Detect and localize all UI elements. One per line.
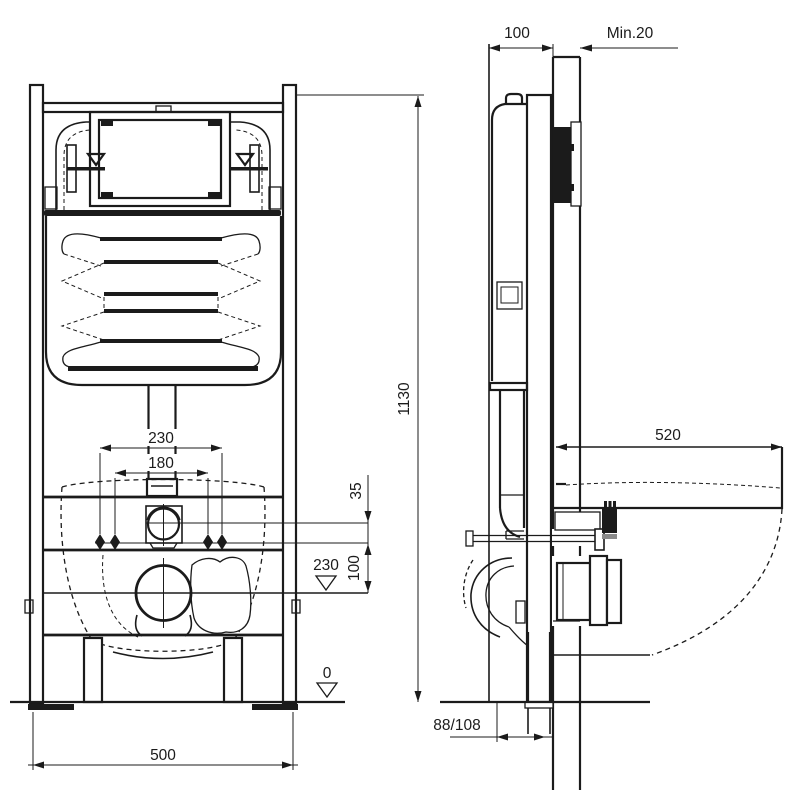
outlet-height-datum: 230 [313,557,339,590]
foot-plate-right [252,704,298,710]
frame-upright-profile [527,95,551,702]
width-dimension: 500 [28,712,298,770]
frame-top-crossbar [43,103,283,112]
frame-rail-right [283,85,296,704]
datum-triangle [316,576,336,590]
floor-datum: 0 [317,665,337,697]
access-window-outer [90,112,230,206]
depth-dimension: 100 [489,25,553,57]
adjustable-leg-right [224,638,242,702]
height-offsets-dimension: 35 100 [346,475,372,593]
window-corner-tick [101,192,113,197]
flush-valve-inner [501,287,518,303]
cistern-base-bar [490,383,527,390]
cistern-ribbon-pattern [62,234,260,371]
access-window-inner [99,120,221,198]
dim-outlet-height-label: 230 [313,557,339,574]
dim-supply-gap-label: 35 [348,482,365,499]
window-corner-tick [208,121,220,126]
foot-plate-left [28,704,74,710]
installation-drawing-page: 230 180 35 100 230 0 [0,0,800,800]
fixing-bracket-side [555,512,600,530]
flush-pipe-coupler [147,479,177,496]
rod-washer [602,534,617,539]
dim-drain-offset-label: 88/108 [433,717,480,734]
fixing-bolt [95,534,105,550]
bracket-clip [569,184,574,191]
dim-frame-depth-label: 100 [504,25,530,42]
dim-floor-level-label: 0 [323,665,332,682]
threaded-rod-nut [602,508,617,533]
window-corner-tick [101,121,113,126]
dim-bolt-inner-label: 180 [148,455,174,472]
dim-bolt-outlet-gap-label: 100 [346,555,363,581]
water-supply-unit [146,504,182,548]
offset-connector-front [191,557,251,633]
cistern-body [46,216,281,385]
flush-plate [554,127,571,203]
dim-frame-width-label: 500 [150,747,176,764]
dim-pan-depth-label: 520 [655,427,681,444]
flush-bend [500,508,520,537]
dim-bolt-outer-label: 230 [148,430,174,447]
fixing-bolt [203,534,213,550]
waste-outlet-front [136,558,192,636]
technical-drawing: 230 180 35 100 230 0 [0,0,800,800]
frame-rail-left [30,85,43,704]
datum-triangle [317,683,337,697]
dim-wall-min-label: Min.20 [607,25,654,42]
wall-min-dimension: Min.20 [580,25,678,52]
dim-frame-height-label: 1130 [396,382,413,416]
fixing-bolt [217,534,227,550]
fixing-bolt [110,534,120,550]
water-level-symbol-right [230,154,268,171]
adjustable-leg-left [84,638,102,702]
window-corner-tick [208,192,220,197]
overall-height-dimension: 1130 [297,95,424,702]
pan-side-profile [552,447,783,655]
front-view: 230 180 35 100 230 0 [10,85,372,770]
cistern-cap [506,94,522,104]
flush-plate-bracket [571,122,581,206]
cistern-top-bar [44,210,281,216]
side-view: 100 Min.20 520 88/108 [433,25,783,790]
outlet-connector-side [552,556,621,626]
bracket-clip [569,144,574,151]
